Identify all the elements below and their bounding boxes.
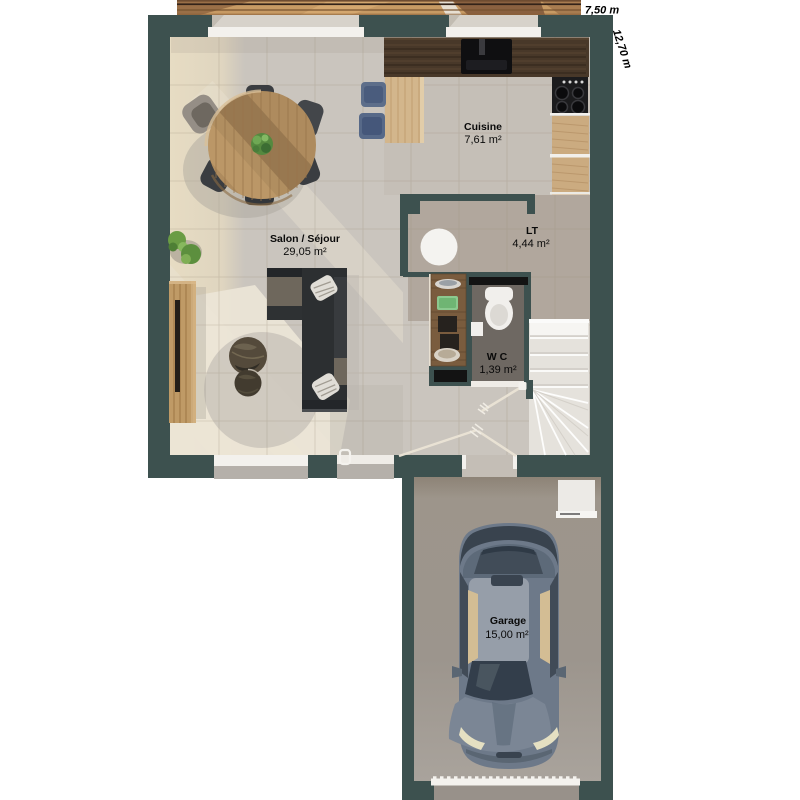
svg-text:4,44 m²: 4,44 m² (512, 238, 550, 250)
svg-text:29,05 m²: 29,05 m² (283, 246, 327, 258)
svg-text:Salon / Séjour: Salon / Séjour (270, 233, 340, 245)
svg-text:Garage: Garage (490, 615, 526, 627)
svg-text:W C: W C (487, 351, 508, 363)
svg-text:LT: LT (526, 225, 539, 237)
svg-text:7,61 m²: 7,61 m² (464, 134, 502, 146)
svg-text:Cuisine: Cuisine (464, 121, 502, 133)
svg-text:1,39 m²: 1,39 m² (479, 364, 517, 376)
svg-text:7,50 m: 7,50 m (585, 5, 619, 17)
svg-text:15,00 m²: 15,00 m² (485, 629, 529, 641)
